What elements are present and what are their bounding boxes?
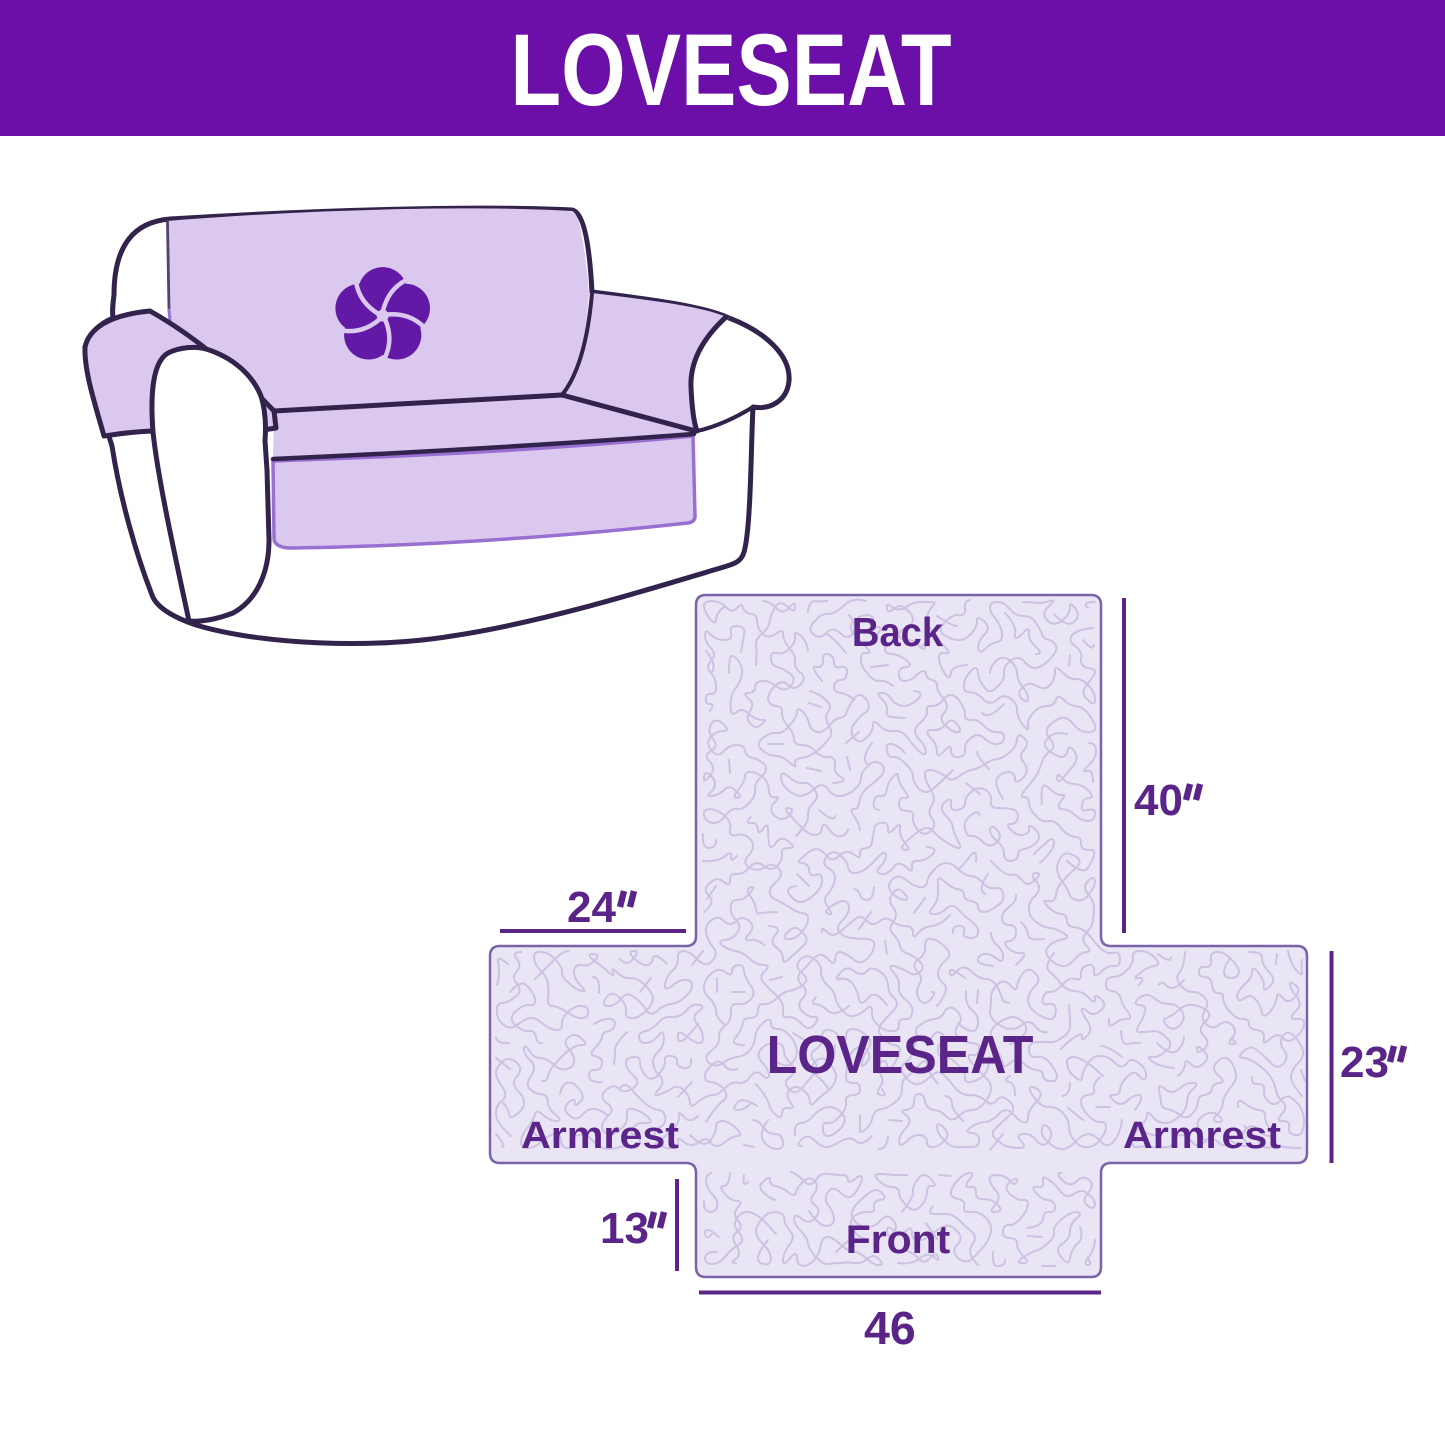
svg-text:46: 46 bbox=[864, 1302, 916, 1354]
svg-text:23: 23 bbox=[1340, 1038, 1389, 1087]
svg-text:24: 24 bbox=[567, 883, 616, 932]
svg-text:LOVESEAT: LOVESEAT bbox=[767, 1025, 1034, 1085]
svg-text:Armrest: Armrest bbox=[521, 1114, 679, 1156]
svg-text:Front: Front bbox=[846, 1218, 950, 1262]
svg-text:LOVESEAT: LOVESEAT bbox=[510, 13, 951, 127]
svg-text:13: 13 bbox=[600, 1204, 649, 1253]
svg-text:40: 40 bbox=[1134, 776, 1183, 825]
svg-text:Armrest: Armrest bbox=[1123, 1114, 1281, 1156]
svg-text:Back: Back bbox=[852, 610, 944, 656]
